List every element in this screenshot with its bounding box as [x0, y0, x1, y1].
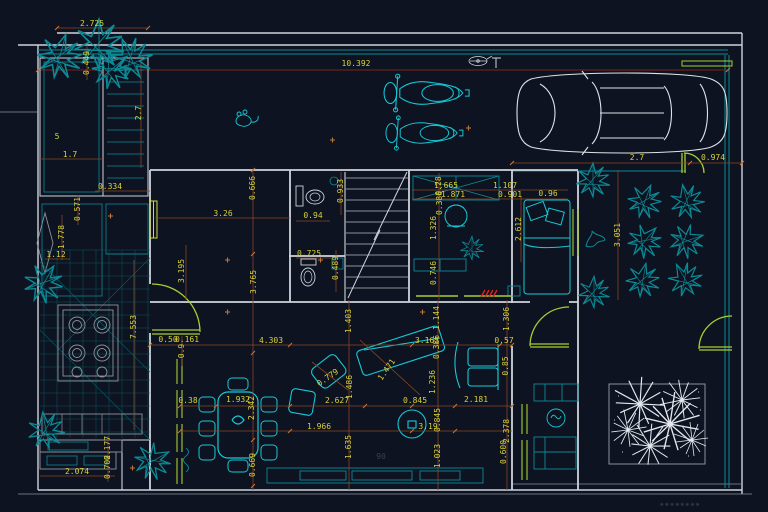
dimension-label: 0.666	[249, 176, 257, 200]
t-symbol-icon	[492, 58, 501, 68]
plant-icon	[128, 436, 178, 486]
dimension-label: 0.38	[178, 397, 197, 405]
green-wall-segments	[416, 61, 732, 296]
desk-chair	[445, 205, 467, 227]
bird-icon	[586, 231, 605, 247]
nightstand	[508, 286, 520, 296]
dimension-label: 3.195	[178, 259, 186, 283]
floor-lamp-icon	[547, 409, 565, 427]
dimension-label: 0.845	[434, 408, 442, 432]
sink	[47, 456, 77, 465]
teapot-icon	[469, 56, 492, 66]
plant-icon	[666, 180, 707, 221]
white-plant-feature	[603, 372, 708, 476]
dimension-label: 90	[376, 453, 386, 461]
toilet-icon	[296, 186, 303, 206]
dimension-label: 0.845	[403, 397, 427, 405]
column-marker	[568, 42, 584, 55]
dimension-label: 0.449	[83, 51, 91, 75]
dimension-label: 10.392	[342, 60, 371, 68]
dimension-label: 0.600	[500, 440, 508, 464]
dimension-label: 0.334	[98, 183, 122, 191]
dimension-label: 3.765	[250, 270, 258, 294]
cad-floor-plan-canvas[interactable]: 2.72510.3922.70.9740.4492.751.70.3340.66…	[0, 0, 768, 512]
dimension-label: 1.12	[46, 251, 65, 259]
dimension-label: 0.9	[178, 344, 186, 358]
dimension-label: 1.635	[345, 435, 353, 459]
dimension-label: 1.144	[433, 306, 441, 330]
lounge-chairs	[534, 384, 578, 469]
watermark-text: ▪▪▪▪▪▪▪▪	[660, 501, 701, 508]
plant-icon	[662, 256, 708, 302]
dimension-label: 2.725	[80, 20, 104, 28]
toilet-icon	[301, 259, 316, 265]
dimension-label: 0.725	[297, 250, 321, 258]
dimension-label: 0.386	[436, 191, 444, 215]
dimension-label: 0.386	[433, 335, 441, 359]
dimension-label: 0.57	[494, 337, 513, 345]
dimension-label: 0.96	[538, 190, 557, 198]
dimension-label: 1.326	[430, 216, 438, 240]
tv-cabinet	[267, 468, 483, 483]
column-marker	[730, 181, 745, 195]
motorcycles	[384, 74, 469, 150]
plant-icon	[33, 29, 87, 83]
floor-plan-drawing	[0, 0, 768, 512]
column-marker	[409, 42, 424, 54]
kitchen-window	[150, 201, 157, 238]
column-marker	[17, 422, 31, 436]
planter-boxes	[40, 58, 148, 196]
column-marker	[730, 349, 745, 364]
mouse-icon	[236, 110, 258, 126]
column-marker	[148, 41, 162, 53]
dimension-label: 0.85	[502, 356, 510, 375]
column-marker	[17, 330, 31, 343]
motorcycle-icon	[384, 74, 469, 112]
column-marker	[17, 231, 31, 244]
plant-icon	[25, 409, 67, 451]
dimension-label: 0.94	[303, 212, 322, 220]
motorcycle-icon	[386, 116, 463, 150]
plant-icon	[576, 163, 610, 197]
plant-icon	[460, 236, 483, 259]
window-strips	[177, 209, 578, 484]
plant-icon	[621, 217, 669, 265]
dimension-label: 2.612	[515, 217, 523, 241]
column-marker	[290, 42, 304, 54]
dimension-label: 3.26	[213, 210, 232, 218]
dimension-label: 1.236	[429, 370, 437, 394]
dining-room	[184, 378, 278, 472]
dimension-label: 5	[55, 133, 60, 141]
dimension-label: 0.571	[74, 197, 82, 221]
dimension-label: 1.7	[63, 151, 77, 159]
bathroom-upper	[296, 177, 338, 206]
dimension-label: 2.342	[248, 396, 256, 420]
dimension-label: 4.303	[259, 337, 283, 345]
dimension-lines	[40, 28, 742, 490]
dimension-label: 0.933	[337, 179, 345, 203]
bed	[524, 200, 570, 294]
dimension-label: 2.7	[135, 106, 143, 120]
dimension-label: 1.871	[441, 191, 465, 199]
dimension-label: 2.627	[325, 397, 349, 405]
stairs	[346, 172, 408, 298]
column-marker	[730, 299, 745, 314]
plant-icon	[578, 276, 609, 307]
dimension-label: 1.023	[434, 444, 442, 468]
outer-walls	[18, 33, 742, 494]
squiggle-decor	[184, 448, 189, 472]
dimension-label: 0.489	[332, 256, 340, 280]
dimension-label: 1.306	[503, 307, 511, 331]
pillow	[545, 208, 564, 225]
dimension-label: 2.074	[65, 468, 89, 476]
column-marker	[17, 142, 31, 155]
dimension-label: 7.553	[130, 315, 138, 339]
plant-icon	[665, 219, 708, 262]
dimension-label: 1.778	[58, 225, 66, 249]
dimension-label: 2.181	[464, 396, 488, 404]
dimension-label: 0.746	[430, 261, 438, 285]
pillow	[526, 201, 548, 220]
plant-icon	[623, 179, 666, 222]
diamond-decor	[37, 213, 53, 273]
dimension-label: 3.051	[614, 223, 622, 247]
dimension-label: 2.7	[630, 154, 644, 162]
plant-icon	[623, 260, 662, 299]
column-marker	[17, 33, 31, 46]
dimension-label: 1.966	[307, 423, 331, 431]
dimension-label: 1.403	[345, 309, 353, 333]
dimension-label: 0.669	[249, 453, 257, 477]
patio-plants	[576, 163, 709, 308]
dimension-label: 1.107	[493, 182, 517, 190]
dimension-label: 0.177	[104, 436, 112, 460]
dimension-label: 0.901	[498, 191, 522, 199]
dimension-label: 0.974	[701, 154, 725, 162]
car-icon	[517, 71, 727, 155]
patio	[534, 163, 709, 475]
